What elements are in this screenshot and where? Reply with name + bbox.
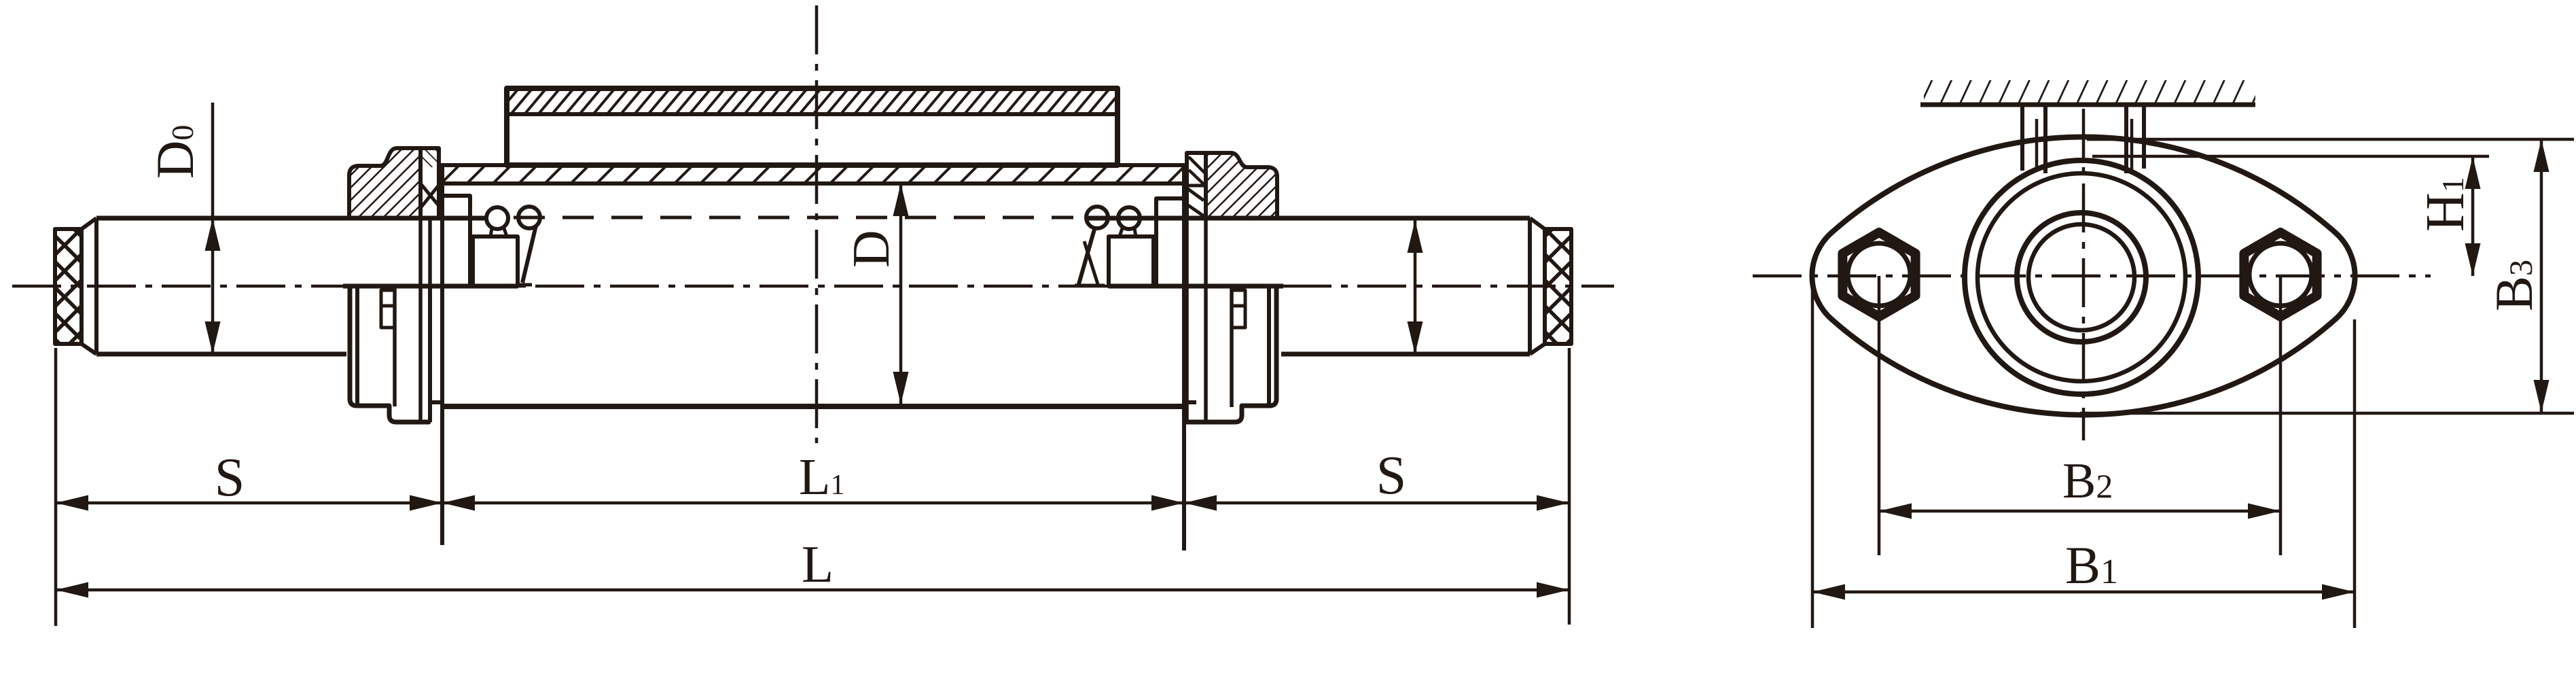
svg-text:L: L — [802, 535, 834, 593]
svg-text:B3: B3 — [2484, 260, 2543, 311]
svg-text:H1: H1 — [2416, 177, 2475, 232]
svg-text:B2: B2 — [2062, 453, 2113, 509]
svg-text:D: D — [842, 230, 900, 268]
svg-text:S: S — [1376, 446, 1407, 506]
svg-text:L1: L1 — [799, 449, 844, 506]
svg-text:D0: D0 — [145, 125, 204, 179]
svg-text:S: S — [215, 448, 245, 508]
svg-text:B1: B1 — [2065, 536, 2118, 595]
